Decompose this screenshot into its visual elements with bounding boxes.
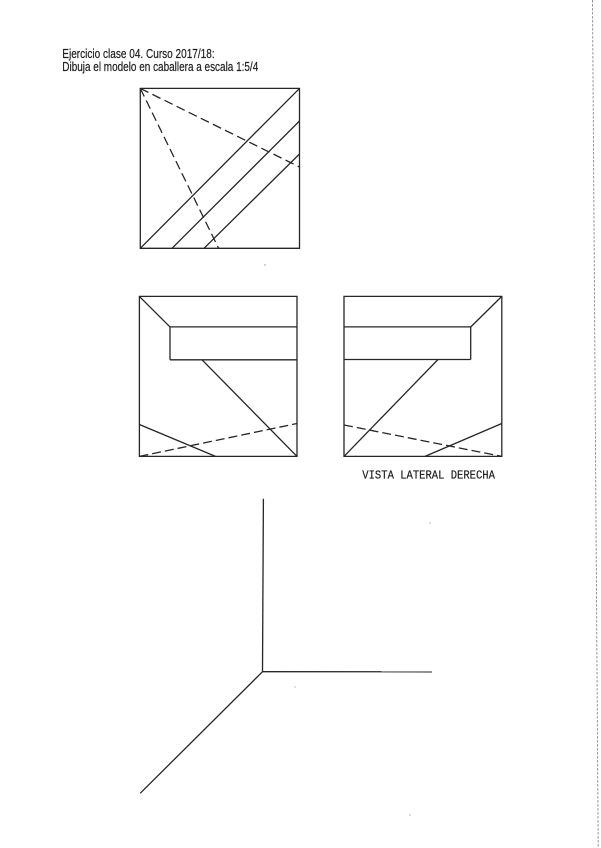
svg-text:Ejercicio clase 04. Curso 2017: Ejercicio clase 04. Curso 2017/18: — [62, 48, 214, 61]
svg-text:VISTA LATERAL DERECHA: VISTA LATERAL DERECHA — [362, 470, 495, 483]
svg-text:Dibuja el modelo en caballera: Dibuja el modelo en caballera a escala 1… — [62, 61, 258, 74]
